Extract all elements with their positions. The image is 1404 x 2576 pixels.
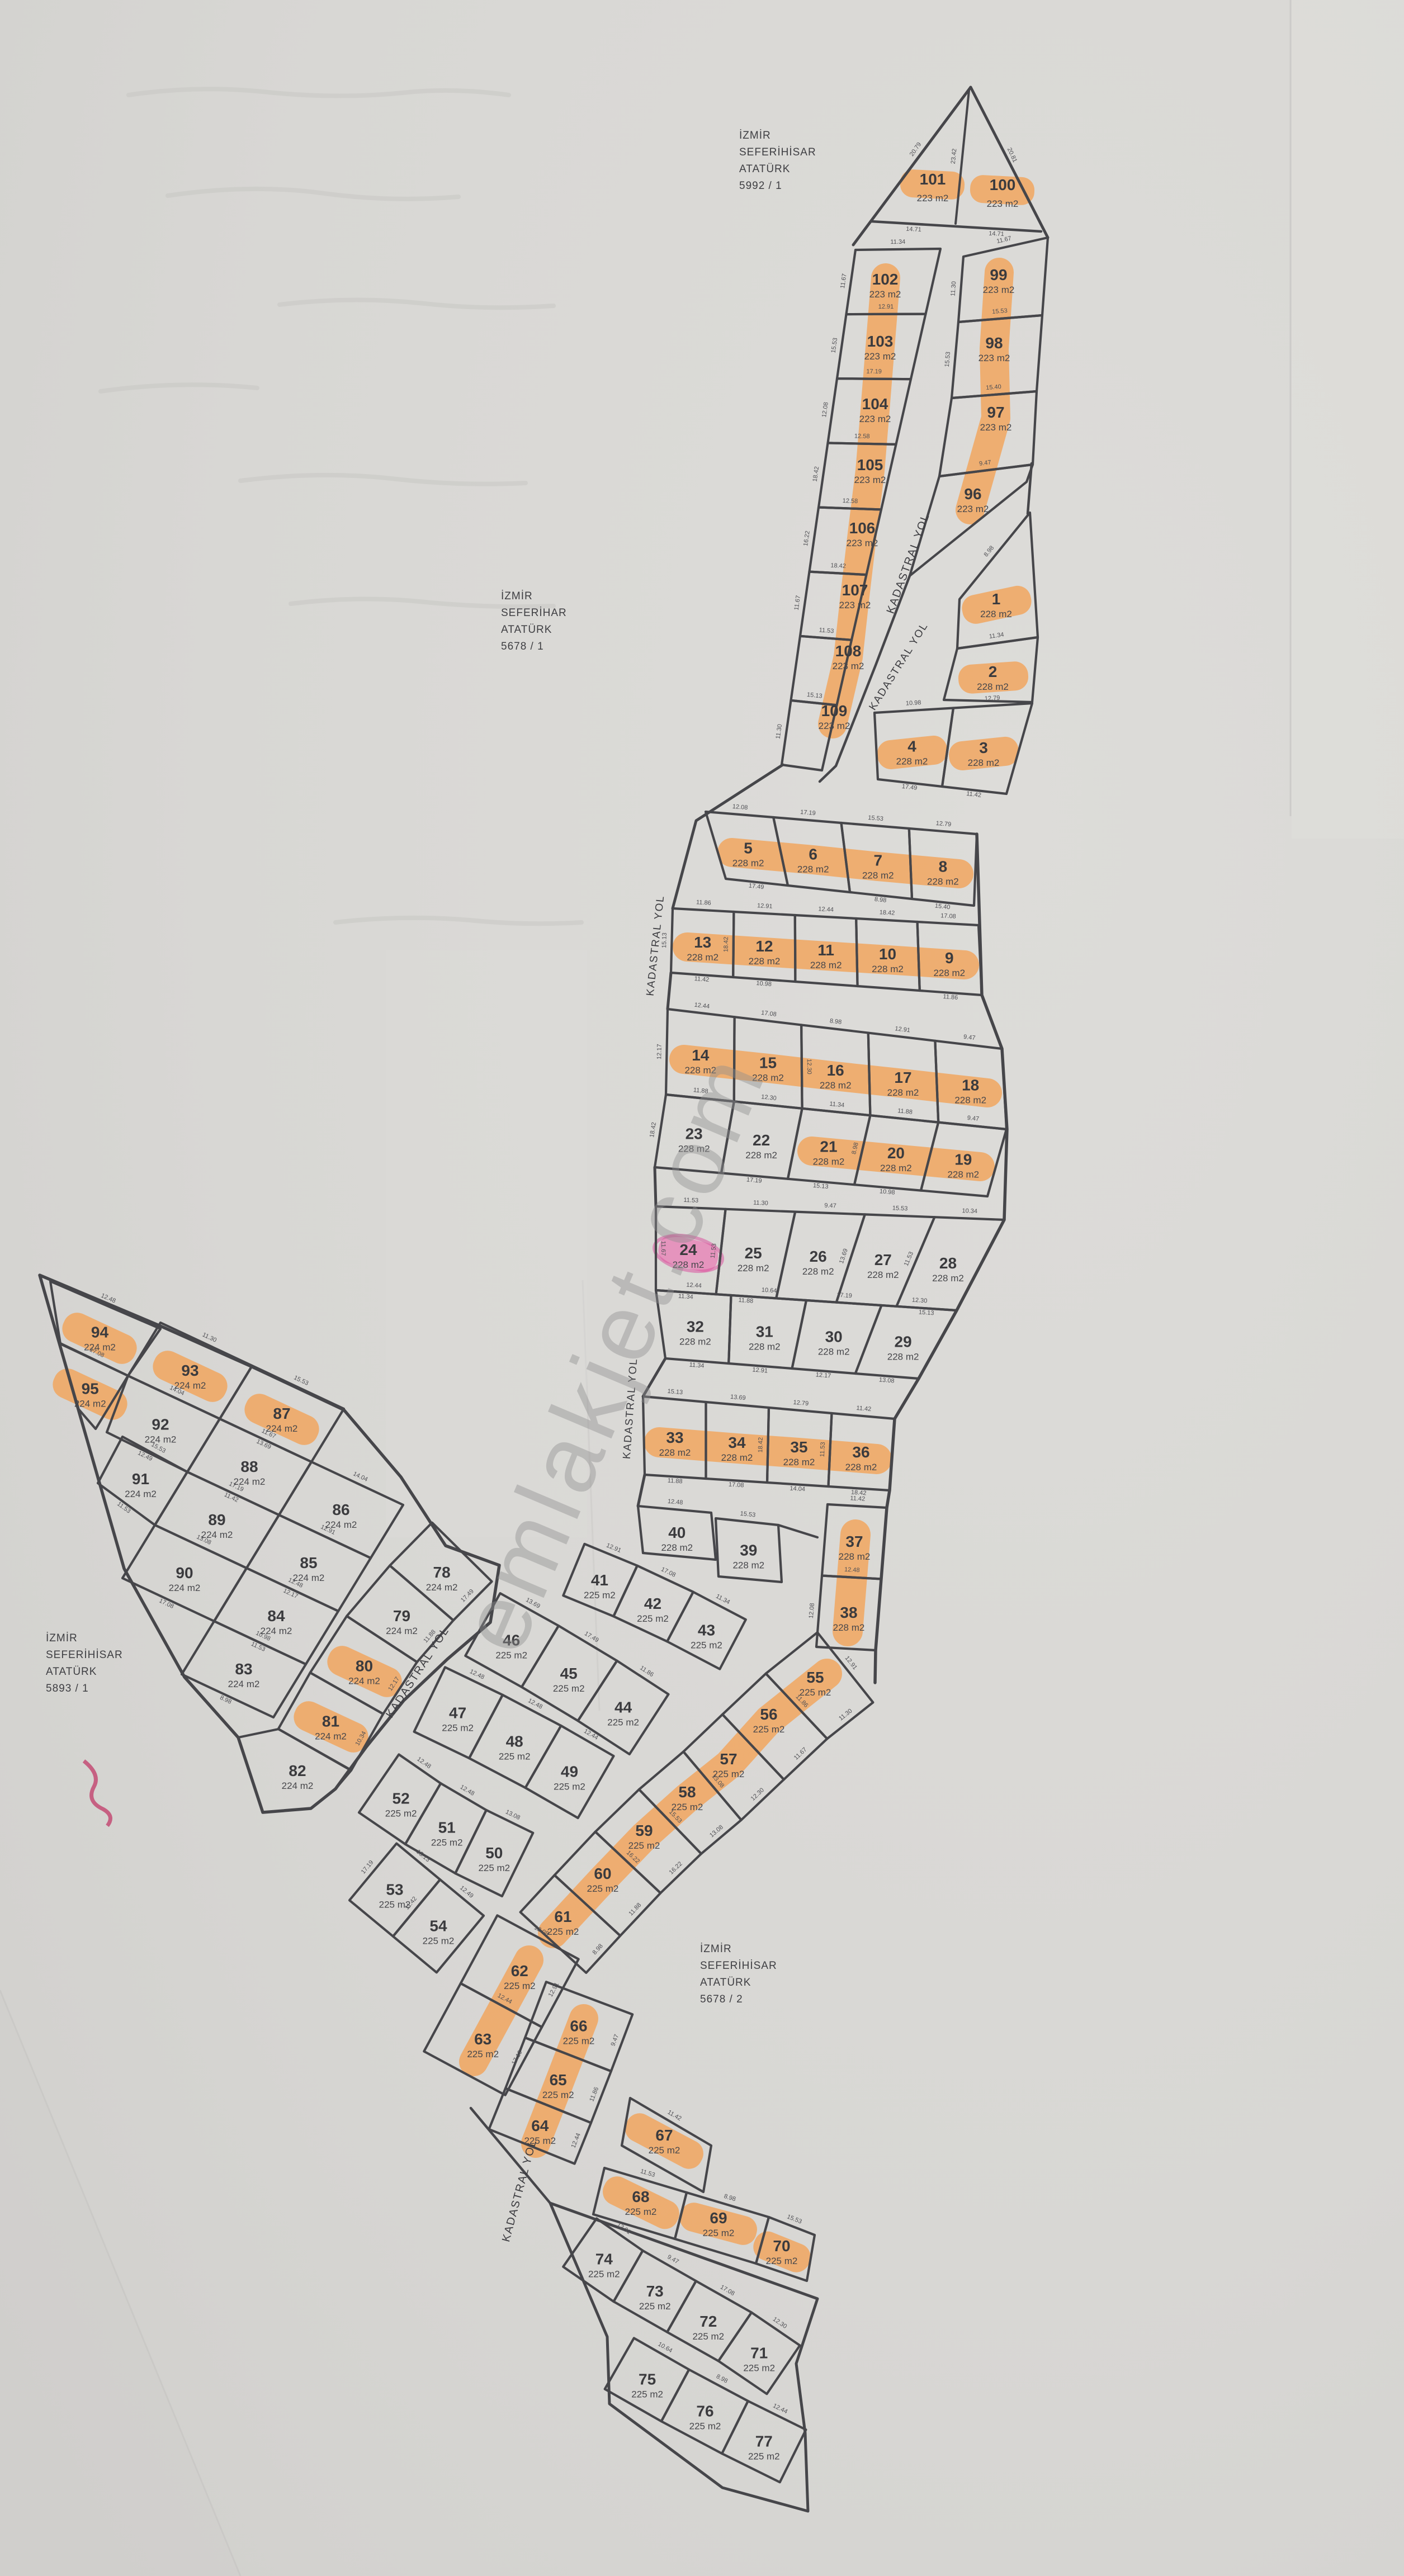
svg-text:65: 65 bbox=[550, 2071, 567, 2089]
svg-text:12.44: 12.44 bbox=[818, 906, 834, 913]
svg-text:223 m2: 223 m2 bbox=[833, 661, 864, 671]
svg-text:225 m2: 225 m2 bbox=[478, 1863, 510, 1873]
svg-text:79: 79 bbox=[393, 1607, 410, 1625]
svg-text:1: 1 bbox=[992, 590, 1001, 608]
svg-text:10.98: 10.98 bbox=[880, 1188, 895, 1196]
svg-text:17.19: 17.19 bbox=[800, 809, 816, 817]
svg-text:12.17: 12.17 bbox=[656, 1044, 663, 1059]
svg-text:225 m2: 225 m2 bbox=[554, 1782, 585, 1792]
svg-text:51: 51 bbox=[438, 1819, 456, 1836]
svg-text:İZMİR: İZMİR bbox=[700, 1943, 732, 1955]
svg-text:11.86: 11.86 bbox=[943, 993, 958, 1001]
svg-text:103: 103 bbox=[867, 333, 894, 350]
svg-text:20: 20 bbox=[887, 1144, 905, 1162]
svg-text:11.34: 11.34 bbox=[689, 1361, 705, 1369]
svg-text:31: 31 bbox=[756, 1323, 773, 1341]
svg-text:17: 17 bbox=[894, 1069, 911, 1086]
svg-text:27: 27 bbox=[874, 1251, 892, 1268]
svg-text:41: 41 bbox=[591, 1571, 608, 1589]
svg-text:75: 75 bbox=[639, 2371, 656, 2388]
svg-text:82: 82 bbox=[289, 1762, 306, 1779]
svg-text:45: 45 bbox=[560, 1665, 578, 1682]
svg-text:70: 70 bbox=[773, 2237, 790, 2255]
svg-text:224 m2: 224 m2 bbox=[426, 1582, 458, 1593]
svg-text:225 m2: 225 m2 bbox=[467, 2049, 499, 2059]
svg-text:12.17: 12.17 bbox=[815, 1371, 831, 1379]
svg-text:12.91: 12.91 bbox=[752, 1366, 768, 1374]
svg-text:3: 3 bbox=[979, 739, 988, 756]
svg-text:5678 / 2: 5678 / 2 bbox=[700, 1993, 743, 2005]
svg-text:106: 106 bbox=[849, 519, 876, 537]
svg-text:224 m2: 224 m2 bbox=[315, 1731, 347, 1741]
svg-text:25: 25 bbox=[745, 1244, 762, 1262]
svg-text:225 m2: 225 m2 bbox=[628, 1840, 660, 1851]
svg-text:4: 4 bbox=[907, 738, 916, 755]
svg-text:21: 21 bbox=[820, 1138, 837, 1156]
svg-text:İZMİR: İZMİR bbox=[46, 1632, 78, 1644]
svg-text:17.08: 17.08 bbox=[940, 912, 956, 920]
svg-text:14.71: 14.71 bbox=[906, 226, 921, 233]
svg-text:77: 77 bbox=[755, 2433, 773, 2450]
svg-text:101: 101 bbox=[920, 171, 946, 188]
svg-text:78: 78 bbox=[433, 1564, 451, 1581]
svg-text:225 m2: 225 m2 bbox=[672, 1802, 703, 1812]
svg-text:SEFERİHİSAR: SEFERİHİSAR bbox=[700, 1960, 777, 1972]
svg-text:225 m2: 225 m2 bbox=[584, 1590, 616, 1600]
svg-text:228 m2: 228 m2 bbox=[797, 864, 829, 875]
svg-text:35: 35 bbox=[790, 1438, 807, 1456]
svg-text:225 m2: 225 m2 bbox=[631, 2389, 663, 2400]
svg-text:90: 90 bbox=[176, 1564, 193, 1581]
svg-text:17.19: 17.19 bbox=[836, 1292, 852, 1300]
svg-text:69: 69 bbox=[710, 2209, 727, 2227]
svg-text:228 m2: 228 m2 bbox=[927, 877, 959, 887]
svg-text:13: 13 bbox=[694, 934, 711, 951]
svg-text:12.08: 12.08 bbox=[808, 1603, 816, 1618]
svg-text:228 m2: 228 m2 bbox=[833, 1622, 865, 1633]
svg-text:224 m2: 224 m2 bbox=[169, 1583, 201, 1593]
svg-text:102: 102 bbox=[872, 271, 899, 288]
svg-text:18.42: 18.42 bbox=[757, 1437, 764, 1453]
svg-text:53: 53 bbox=[386, 1881, 403, 1898]
svg-text:228 m2: 228 m2 bbox=[862, 870, 894, 881]
svg-text:48: 48 bbox=[506, 1733, 523, 1750]
svg-text:228 m2: 228 m2 bbox=[732, 1560, 764, 1571]
svg-text:223 m2: 223 m2 bbox=[978, 353, 1010, 363]
svg-text:54: 54 bbox=[429, 1917, 447, 1934]
svg-text:33: 33 bbox=[666, 1429, 683, 1446]
svg-text:34: 34 bbox=[728, 1434, 746, 1451]
svg-text:228 m2: 228 m2 bbox=[980, 609, 1012, 619]
svg-text:11.42: 11.42 bbox=[856, 1405, 872, 1413]
svg-text:224 m2: 224 m2 bbox=[125, 1489, 157, 1499]
svg-text:12.79: 12.79 bbox=[935, 820, 951, 828]
svg-text:8.98: 8.98 bbox=[874, 896, 887, 904]
svg-text:13.69: 13.69 bbox=[730, 1394, 746, 1401]
svg-text:57: 57 bbox=[720, 1750, 737, 1768]
svg-text:ATATÜRK: ATATÜRK bbox=[739, 163, 790, 175]
svg-text:11.30: 11.30 bbox=[753, 1200, 768, 1207]
svg-text:228 m2: 228 m2 bbox=[968, 757, 1000, 768]
svg-text:228 m2: 228 m2 bbox=[659, 1447, 691, 1458]
svg-text:228 m2: 228 m2 bbox=[732, 858, 764, 869]
svg-text:13.08: 13.08 bbox=[879, 1376, 895, 1384]
svg-text:228 m2: 228 m2 bbox=[813, 1157, 845, 1167]
svg-text:12.48: 12.48 bbox=[844, 1566, 860, 1574]
svg-text:61: 61 bbox=[554, 1908, 571, 1925]
svg-text:109: 109 bbox=[821, 702, 848, 719]
svg-text:223 m2: 223 m2 bbox=[864, 351, 896, 362]
svg-text:225 m2: 225 m2 bbox=[649, 2145, 680, 2156]
svg-text:97: 97 bbox=[987, 404, 1004, 421]
svg-text:12.58: 12.58 bbox=[843, 498, 858, 505]
svg-text:İZMİR: İZMİR bbox=[501, 590, 533, 602]
svg-text:225 m2: 225 m2 bbox=[431, 1838, 463, 1848]
svg-text:5: 5 bbox=[744, 840, 753, 857]
svg-text:73: 73 bbox=[646, 2283, 664, 2300]
svg-text:9.47: 9.47 bbox=[963, 1034, 976, 1041]
svg-text:225 m2: 225 m2 bbox=[553, 1683, 585, 1694]
svg-text:225 m2: 225 m2 bbox=[504, 1981, 536, 1991]
svg-text:15.53: 15.53 bbox=[944, 352, 952, 367]
svg-text:12.48: 12.48 bbox=[667, 1498, 683, 1506]
svg-text:98: 98 bbox=[985, 334, 1003, 352]
svg-text:66: 66 bbox=[570, 2018, 587, 2035]
svg-text:228 m2: 228 m2 bbox=[977, 681, 1009, 692]
svg-text:12.08: 12.08 bbox=[732, 803, 748, 811]
svg-text:225 m2: 225 m2 bbox=[766, 2256, 798, 2266]
svg-text:64: 64 bbox=[531, 2117, 549, 2134]
svg-text:225 m2: 225 m2 bbox=[499, 1751, 531, 1762]
svg-text:228 m2: 228 m2 bbox=[661, 1542, 693, 1553]
svg-text:228 m2: 228 m2 bbox=[738, 1263, 769, 1273]
svg-text:223 m2: 223 m2 bbox=[847, 538, 878, 548]
svg-text:228 m2: 228 m2 bbox=[896, 756, 928, 767]
svg-text:40: 40 bbox=[668, 1524, 686, 1541]
svg-text:9.47: 9.47 bbox=[824, 1202, 836, 1210]
svg-text:32: 32 bbox=[687, 1318, 704, 1336]
svg-text:36: 36 bbox=[852, 1443, 869, 1461]
svg-text:225 m2: 225 m2 bbox=[385, 1808, 417, 1819]
svg-text:224 m2: 224 m2 bbox=[386, 1626, 418, 1636]
svg-text:11: 11 bbox=[817, 941, 834, 959]
svg-text:81: 81 bbox=[322, 1712, 339, 1730]
svg-text:225 m2: 225 m2 bbox=[743, 2362, 775, 2373]
svg-text:15.53: 15.53 bbox=[868, 815, 883, 822]
svg-text:26: 26 bbox=[810, 1248, 827, 1265]
svg-text:62: 62 bbox=[511, 1962, 528, 1980]
svg-text:228 m2: 228 m2 bbox=[820, 1080, 852, 1091]
svg-text:55: 55 bbox=[806, 1669, 824, 1686]
svg-text:225 m2: 225 m2 bbox=[563, 2036, 595, 2047]
svg-text:15.53: 15.53 bbox=[892, 1205, 908, 1212]
svg-text:10.64: 10.64 bbox=[761, 1287, 777, 1295]
svg-text:11.88: 11.88 bbox=[738, 1297, 753, 1305]
svg-text:76: 76 bbox=[696, 2403, 713, 2420]
svg-text:9.47: 9.47 bbox=[967, 1115, 980, 1123]
svg-text:87: 87 bbox=[273, 1405, 290, 1422]
svg-text:5893 / 1: 5893 / 1 bbox=[46, 1683, 89, 1694]
svg-text:99: 99 bbox=[990, 266, 1007, 283]
svg-text:228 m2: 228 m2 bbox=[933, 968, 965, 978]
svg-text:104: 104 bbox=[862, 395, 888, 413]
svg-text:225 m2: 225 m2 bbox=[542, 2090, 574, 2100]
svg-text:15.13: 15.13 bbox=[813, 1182, 829, 1190]
svg-text:223 m2: 223 m2 bbox=[819, 721, 850, 731]
svg-text:58: 58 bbox=[678, 1783, 696, 1801]
svg-text:224 m2: 224 m2 bbox=[145, 1434, 177, 1445]
svg-text:225 m2: 225 m2 bbox=[625, 2206, 657, 2217]
svg-text:96: 96 bbox=[964, 485, 981, 503]
svg-text:18: 18 bbox=[962, 1076, 979, 1093]
svg-text:15.13: 15.13 bbox=[667, 1388, 683, 1396]
svg-text:11.42: 11.42 bbox=[850, 1495, 865, 1502]
svg-text:38: 38 bbox=[840, 1604, 857, 1621]
svg-text:225 m2: 225 m2 bbox=[423, 1935, 455, 1946]
svg-text:228 m2: 228 m2 bbox=[932, 1273, 964, 1284]
svg-text:225 m2: 225 m2 bbox=[637, 1613, 669, 1624]
svg-text:225 m2: 225 m2 bbox=[442, 1722, 474, 1733]
svg-text:228 m2: 228 m2 bbox=[872, 964, 904, 974]
svg-text:7: 7 bbox=[874, 852, 883, 869]
svg-text:18.42: 18.42 bbox=[879, 909, 895, 916]
svg-text:228 m2: 228 m2 bbox=[887, 1352, 919, 1362]
svg-text:223 m2: 223 m2 bbox=[980, 422, 1012, 433]
svg-text:17.19: 17.19 bbox=[866, 368, 882, 375]
svg-text:ATATÜRK: ATATÜRK bbox=[501, 624, 552, 636]
svg-text:15.13: 15.13 bbox=[919, 1309, 934, 1317]
svg-text:72: 72 bbox=[699, 2313, 717, 2330]
svg-text:94: 94 bbox=[91, 1324, 109, 1341]
svg-text:223 m2: 223 m2 bbox=[854, 475, 886, 485]
svg-text:47: 47 bbox=[449, 1704, 466, 1721]
svg-text:28: 28 bbox=[939, 1254, 957, 1272]
svg-text:11.53: 11.53 bbox=[819, 627, 834, 634]
svg-text:59: 59 bbox=[635, 1822, 653, 1839]
svg-text:84: 84 bbox=[267, 1607, 285, 1625]
svg-text:83: 83 bbox=[235, 1660, 252, 1678]
svg-text:17.19: 17.19 bbox=[746, 1176, 762, 1184]
svg-text:8: 8 bbox=[939, 858, 948, 875]
svg-text:6: 6 bbox=[809, 846, 817, 863]
svg-text:88: 88 bbox=[240, 1458, 258, 1475]
svg-text:11.34: 11.34 bbox=[890, 239, 905, 245]
svg-text:11.53: 11.53 bbox=[819, 1442, 826, 1457]
svg-text:30: 30 bbox=[825, 1328, 843, 1346]
svg-text:228 m2: 228 m2 bbox=[749, 956, 781, 967]
svg-text:44: 44 bbox=[614, 1698, 632, 1716]
svg-text:228 m2: 228 m2 bbox=[721, 1452, 753, 1463]
svg-text:223 m2: 223 m2 bbox=[957, 504, 989, 514]
svg-text:228 m2: 228 m2 bbox=[783, 1457, 815, 1467]
svg-text:228 m2: 228 m2 bbox=[880, 1163, 912, 1173]
svg-text:225 m2: 225 m2 bbox=[691, 1640, 722, 1651]
svg-text:18.42: 18.42 bbox=[830, 562, 846, 570]
svg-text:12: 12 bbox=[755, 937, 773, 955]
svg-text:105: 105 bbox=[857, 456, 883, 473]
svg-text:228 m2: 228 m2 bbox=[867, 1270, 899, 1280]
svg-text:49: 49 bbox=[561, 1763, 578, 1781]
svg-text:80: 80 bbox=[356, 1658, 373, 1675]
svg-text:11.42: 11.42 bbox=[694, 976, 710, 983]
svg-text:10.98: 10.98 bbox=[756, 980, 772, 988]
svg-text:228 m2: 228 m2 bbox=[687, 952, 718, 963]
svg-text:ATATÜRK: ATATÜRK bbox=[700, 1977, 751, 1988]
svg-text:19: 19 bbox=[954, 1150, 972, 1168]
svg-text:12.79: 12.79 bbox=[985, 694, 1000, 702]
svg-text:85: 85 bbox=[300, 1554, 317, 1571]
svg-text:SEFERİHİSAR: SEFERİHİSAR bbox=[46, 1649, 123, 1661]
svg-text:223 m2: 223 m2 bbox=[917, 193, 949, 203]
svg-text:8.98: 8.98 bbox=[829, 1017, 842, 1025]
svg-text:107: 107 bbox=[842, 581, 868, 599]
svg-text:2: 2 bbox=[989, 663, 998, 680]
svg-text:89: 89 bbox=[208, 1511, 225, 1528]
svg-text:14.04: 14.04 bbox=[790, 1485, 805, 1493]
svg-text:60: 60 bbox=[594, 1865, 611, 1882]
svg-text:228 m2: 228 m2 bbox=[679, 1337, 711, 1347]
svg-text:9: 9 bbox=[945, 949, 954, 967]
svg-text:223 m2: 223 m2 bbox=[987, 198, 1019, 209]
svg-text:42: 42 bbox=[644, 1595, 661, 1612]
svg-text:228 m2: 228 m2 bbox=[887, 1087, 919, 1098]
svg-text:91: 91 bbox=[132, 1470, 149, 1488]
svg-text:224 m2: 224 m2 bbox=[282, 1781, 314, 1791]
svg-text:SEFERİHİSAR: SEFERİHİSAR bbox=[739, 146, 816, 158]
svg-text:18.42: 18.42 bbox=[723, 937, 730, 953]
svg-text:43: 43 bbox=[698, 1622, 715, 1639]
svg-text:63: 63 bbox=[474, 2030, 491, 2048]
svg-text:37: 37 bbox=[845, 1533, 863, 1550]
svg-text:223 m2: 223 m2 bbox=[869, 289, 901, 300]
svg-text:17.08: 17.08 bbox=[729, 1481, 744, 1489]
svg-text:12.91: 12.91 bbox=[757, 902, 773, 910]
svg-text:108: 108 bbox=[835, 642, 862, 660]
svg-text:225 m2: 225 m2 bbox=[800, 1687, 831, 1698]
svg-text:15.40: 15.40 bbox=[986, 383, 1001, 391]
svg-text:12.58: 12.58 bbox=[854, 433, 870, 440]
svg-text:29: 29 bbox=[895, 1333, 912, 1351]
svg-text:10: 10 bbox=[879, 945, 896, 963]
svg-text:224 m2: 224 m2 bbox=[228, 1679, 260, 1689]
svg-text:224 m2: 224 m2 bbox=[348, 1676, 380, 1687]
svg-text:İZMİR: İZMİR bbox=[739, 130, 771, 141]
svg-text:SEFERİHAR: SEFERİHAR bbox=[501, 607, 567, 619]
svg-text:10.34: 10.34 bbox=[962, 1207, 977, 1215]
svg-text:56: 56 bbox=[760, 1706, 777, 1723]
svg-text:225 m2: 225 m2 bbox=[587, 1883, 619, 1894]
svg-text:228 m2: 228 m2 bbox=[749, 1342, 781, 1352]
svg-text:228 m2: 228 m2 bbox=[810, 960, 842, 970]
svg-text:228 m2: 228 m2 bbox=[818, 1347, 850, 1357]
svg-text:52: 52 bbox=[393, 1789, 410, 1807]
svg-text:224 m2: 224 m2 bbox=[74, 1399, 106, 1409]
svg-text:225 m2: 225 m2 bbox=[639, 2301, 671, 2312]
svg-text:95: 95 bbox=[82, 1380, 99, 1398]
svg-text:225 m2: 225 m2 bbox=[607, 1717, 639, 1727]
svg-text:223 m2: 223 m2 bbox=[839, 600, 871, 610]
svg-text:67: 67 bbox=[655, 2127, 673, 2144]
svg-text:92: 92 bbox=[152, 1416, 169, 1433]
svg-text:228 m2: 228 m2 bbox=[947, 1169, 979, 1180]
svg-text:228 m2: 228 m2 bbox=[839, 1551, 871, 1562]
svg-text:11.86: 11.86 bbox=[696, 899, 711, 906]
svg-text:228 m2: 228 m2 bbox=[845, 1462, 877, 1472]
svg-text:68: 68 bbox=[632, 2188, 649, 2205]
svg-text:39: 39 bbox=[740, 1542, 757, 1559]
svg-text:86: 86 bbox=[332, 1501, 349, 1518]
svg-text:225 m2: 225 m2 bbox=[692, 2331, 724, 2342]
svg-text:71: 71 bbox=[750, 2344, 768, 2361]
svg-text:225 m2: 225 m2 bbox=[753, 1724, 785, 1735]
svg-text:12.91: 12.91 bbox=[878, 304, 894, 310]
svg-text:100: 100 bbox=[990, 176, 1016, 193]
svg-text:5678 / 1: 5678 / 1 bbox=[501, 641, 544, 652]
svg-text:12.79: 12.79 bbox=[793, 1399, 809, 1407]
svg-text:225 m2: 225 m2 bbox=[689, 2421, 721, 2432]
svg-text:228 m2: 228 m2 bbox=[954, 1095, 986, 1105]
svg-text:ATATÜRK: ATATÜRK bbox=[46, 1666, 97, 1678]
svg-text:74: 74 bbox=[595, 2251, 613, 2268]
svg-text:11.88: 11.88 bbox=[667, 1478, 682, 1485]
svg-text:223 m2: 223 m2 bbox=[983, 285, 1015, 295]
svg-text:15.53: 15.53 bbox=[992, 307, 1008, 315]
svg-text:10.98: 10.98 bbox=[906, 699, 921, 707]
svg-text:12.30: 12.30 bbox=[911, 1297, 927, 1305]
svg-text:228 m2: 228 m2 bbox=[802, 1266, 834, 1277]
svg-text:225 m2: 225 m2 bbox=[588, 2269, 620, 2280]
svg-text:93: 93 bbox=[181, 1362, 198, 1379]
svg-text:225 m2: 225 m2 bbox=[547, 1926, 579, 1937]
svg-text:5992 / 1: 5992 / 1 bbox=[739, 180, 782, 192]
svg-text:225 m2: 225 m2 bbox=[703, 2228, 735, 2238]
svg-text:225 m2: 225 m2 bbox=[748, 2451, 780, 2462]
svg-text:223 m2: 223 m2 bbox=[859, 414, 891, 424]
svg-text:50: 50 bbox=[485, 1844, 503, 1862]
svg-text:16: 16 bbox=[827, 1062, 844, 1079]
svg-text:11.30: 11.30 bbox=[950, 281, 958, 297]
svg-text:12.30: 12.30 bbox=[806, 1059, 812, 1074]
